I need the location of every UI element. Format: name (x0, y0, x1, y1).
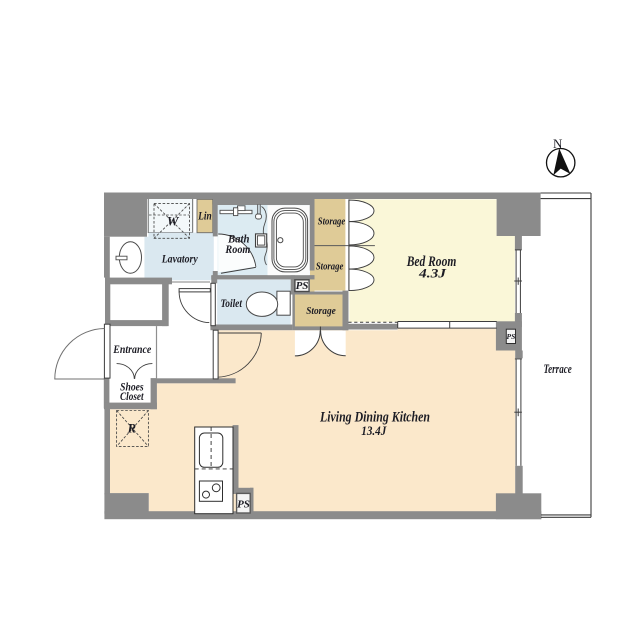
svg-text:4.3J: 4.3J (418, 265, 447, 280)
svg-text:PS: PS (296, 280, 309, 292)
svg-text:PS: PS (237, 498, 250, 510)
svg-text:Lin: Lin (197, 211, 211, 223)
svg-text:Toilet: Toilet (220, 296, 242, 310)
svg-text:Lavatory: Lavatory (161, 252, 198, 266)
svg-text:Terrace: Terrace (544, 362, 573, 376)
svg-text:W: W (167, 213, 180, 228)
svg-text:13.4J: 13.4J (361, 423, 386, 438)
svg-text:Storage: Storage (316, 260, 344, 272)
svg-text:Closet: Closet (120, 389, 144, 403)
svg-text:Storage: Storage (318, 216, 346, 228)
svg-text:PS: PS (507, 332, 516, 341)
svg-text:R: R (127, 422, 136, 436)
svg-text:Room: Room (225, 242, 251, 256)
svg-text:Entrance: Entrance (112, 342, 151, 356)
svg-text:Storage: Storage (306, 305, 336, 317)
